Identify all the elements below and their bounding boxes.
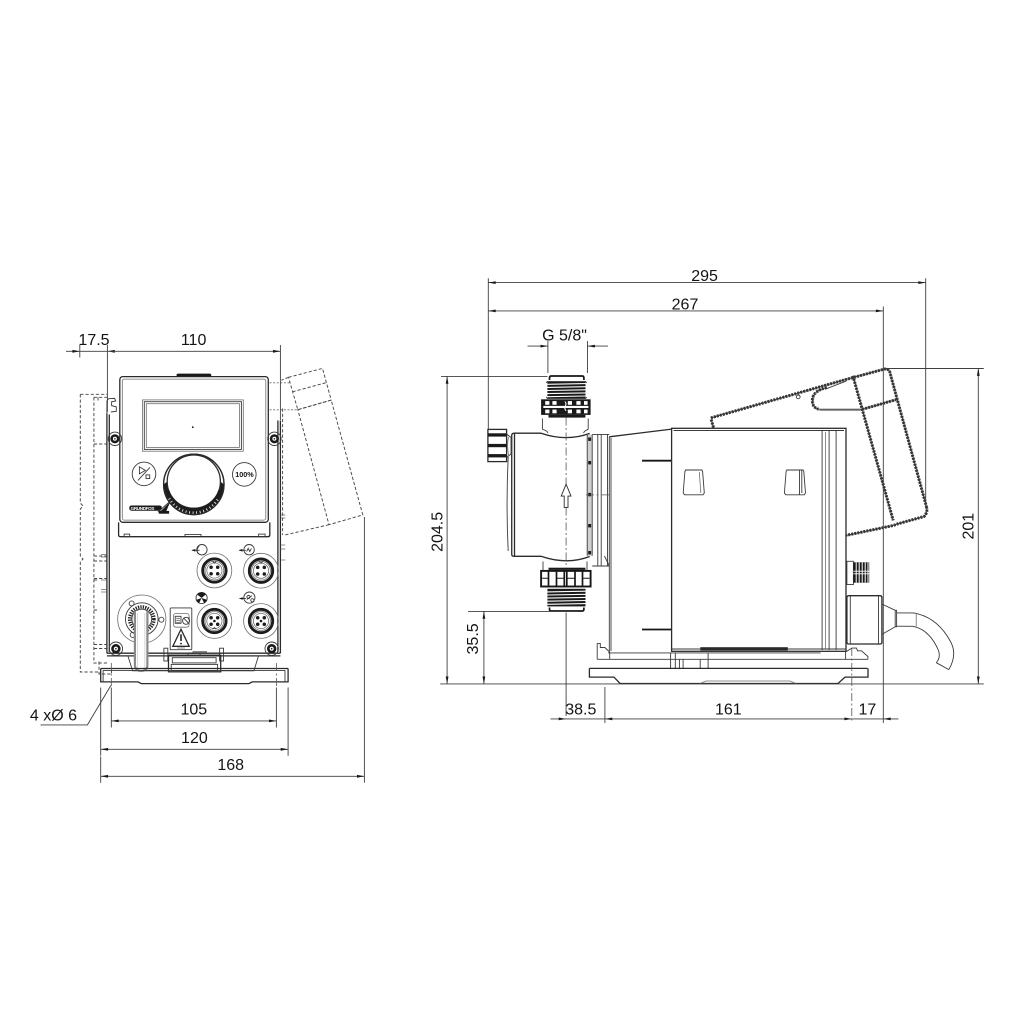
svg-text:GRUNDFOS: GRUNDFOS (131, 506, 155, 511)
svg-text:105: 105 (180, 702, 207, 719)
svg-text:4 xØ 6: 4 xØ 6 (30, 708, 77, 725)
svg-text:295: 295 (691, 268, 718, 285)
svg-text:110: 110 (181, 332, 207, 349)
svg-text:201: 201 (961, 513, 978, 540)
svg-text:35.5: 35.5 (465, 623, 482, 654)
svg-text:17: 17 (859, 702, 877, 719)
svg-text:161: 161 (715, 702, 742, 719)
svg-text:267: 267 (672, 296, 699, 313)
svg-text:204.5: 204.5 (429, 512, 446, 552)
svg-text:120: 120 (181, 730, 208, 747)
svg-text:100%: 100% (235, 470, 254, 479)
svg-text:38.5: 38.5 (565, 702, 596, 719)
svg-text:168: 168 (217, 757, 244, 774)
svg-text:17.5: 17.5 (78, 332, 109, 349)
svg-text:G 5/8": G 5/8" (542, 328, 587, 345)
